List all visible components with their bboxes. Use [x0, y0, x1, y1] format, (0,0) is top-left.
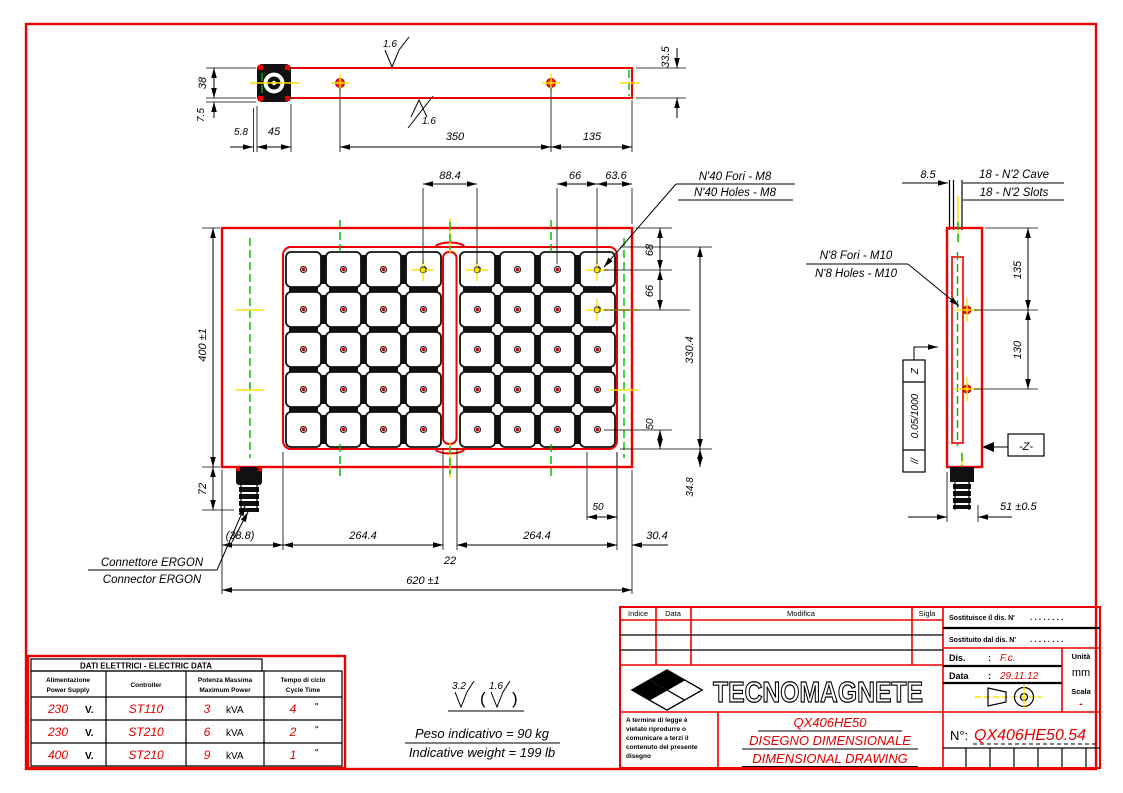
- svg-text:1: 1: [290, 748, 297, 762]
- unita-label: Unità: [1072, 652, 1092, 661]
- dis-sep: :: [988, 653, 991, 663]
- holes-label-en: N'8 Holes - M10: [815, 268, 898, 280]
- svg-text:9: 9: [204, 748, 211, 762]
- slots-label-en: 18 - N'2 Slots: [980, 187, 1049, 199]
- dim-88-4: 88.4: [439, 170, 460, 182]
- doc-title-it: DISEGNO DIMENSIONALE: [749, 733, 911, 748]
- rev-col-modifica: Modifica: [787, 609, 816, 618]
- dim-135-side: 135: [1012, 260, 1024, 279]
- paren-open: (: [480, 689, 486, 708]
- center-slot: [443, 252, 457, 444]
- paren-close: ): [512, 689, 518, 708]
- svg-text:kVA: kVA: [226, 751, 244, 762]
- dim-22: 22: [443, 555, 456, 567]
- company-name: TECNOMAGNETE: [713, 677, 923, 709]
- sostituito-label: Sostituito dal dis. N': [949, 637, 1016, 644]
- data-sep: :: [988, 671, 991, 681]
- svg-text:kVA: kVA: [226, 705, 244, 716]
- col-header: Maximum Power: [199, 687, 251, 694]
- holes-label-it: N'8 Fori - M10: [820, 250, 893, 262]
- data-label: Data: [949, 671, 970, 681]
- dim-30-4: 30.4: [646, 530, 667, 542]
- title-block: Indice Data Modifica Sigla Sostituisce i…: [620, 607, 1100, 768]
- first-angle-projection-icon: [975, 685, 1042, 709]
- weight-en: Indicative weight = 199 lb: [409, 745, 555, 760]
- m10-holes-callout: N'8 Fori - M10 N'8 Holes - M10: [806, 250, 959, 306]
- holes-label-en: N'40 Holes - M8: [694, 187, 777, 199]
- drawing-sheet: 1.6 1.6 38 7.5 5.8 45 350 135 33.5: [0, 0, 1123, 793]
- scala-label: Scala: [1071, 687, 1091, 696]
- svg-text:A termine di legge è: A termine di legge è: [626, 717, 688, 724]
- table-row: 230 V. ST210 6 kVA 2 ": [47, 725, 319, 739]
- dis-label: Dis.: [949, 653, 966, 663]
- rev-col-indice: Indice: [628, 609, 648, 618]
- fcf-tolerance: 0.05/1000: [910, 393, 921, 438]
- svg-text:disegno: disegno: [626, 753, 651, 760]
- svg-text:": ": [315, 748, 319, 759]
- general-notes: 3.2 ( 1.6 ) Peso indicativo = 90 kg Indi…: [405, 681, 560, 760]
- rev-col-data: Data: [665, 609, 682, 618]
- dim-264-4-b: 264.4: [522, 530, 551, 542]
- sostituisce-dots: . . . . . . . .: [1030, 613, 1063, 622]
- dim-63-6: 63.6: [605, 170, 627, 182]
- connector-label-it: Connettore ERGON: [101, 557, 204, 569]
- dim-8-5: 8.5: [920, 169, 936, 181]
- dim-7-5: 7.5: [196, 108, 207, 122]
- ergon-connector-front: [236, 467, 262, 512]
- svg-text:": ": [315, 725, 319, 736]
- weight-note: Peso indicativo = 90 kg Indicative weigh…: [405, 726, 560, 760]
- unita-value: mm: [1072, 667, 1090, 679]
- slots-label-it: 18 - N'2 Cave: [979, 169, 1049, 181]
- table-row: 230 V. ST110 3 kVA 4 ": [47, 702, 319, 716]
- side-view: 8.5 18 - N'2 Cave 18 - N'2 Slots N'8 For…: [806, 169, 1064, 522]
- dim-400: 400 ±1: [197, 328, 209, 362]
- col-header: Controller: [130, 682, 162, 689]
- legal-note: A termine di legge è vietato riprodurre …: [626, 717, 698, 760]
- svg-text:V.: V.: [85, 705, 94, 716]
- dim-50-right: 50: [645, 418, 656, 430]
- svg-text:vietato riprodurre o: vietato riprodurre o: [626, 726, 686, 733]
- datum-z: -Z-: [982, 434, 1044, 456]
- doc-title-en: DIMENSIONAL DRAWING: [752, 751, 908, 766]
- dim-51: 51 ±0.5: [1000, 501, 1038, 513]
- datum-label: -Z-: [1019, 441, 1033, 453]
- svg-text:400: 400: [48, 748, 68, 762]
- technical-drawing: 1.6 1.6 38 7.5 5.8 45 350 135 33.5: [0, 0, 1123, 793]
- rev-col-sigla: Sigla: [919, 609, 937, 618]
- dim-50-bottom: 50: [592, 502, 604, 513]
- drawing-title: QX406HE50 DISEGNO DIMENSIONALE DIMENSION…: [742, 715, 918, 767]
- product-code: QX406HE50: [794, 715, 868, 730]
- sostituisce-label: Sostituisce il dis. N': [949, 615, 1015, 622]
- svg-text:4: 4: [290, 702, 297, 716]
- finish-value: 1.6: [383, 39, 397, 50]
- dim-330-4: 330.4: [684, 336, 696, 364]
- dim-135: 135: [583, 131, 602, 143]
- svg-text:ST210: ST210: [128, 748, 164, 762]
- col-header: Tempo di ciclo: [280, 677, 325, 684]
- parallelism-tolerance-frame: Z 0.05/1000 //: [903, 347, 938, 472]
- col-header: Alimentazione: [46, 677, 90, 684]
- drawing-number: N°: QX406HE50.54: [943, 727, 1100, 768]
- data-value: 29.11.12: [999, 671, 1039, 682]
- dim-66-right: 66: [644, 284, 656, 297]
- sostituito-dots: . . . . . . . .: [1030, 635, 1063, 644]
- col-header: Cycle Time: [286, 687, 321, 694]
- pole-grid: [286, 252, 615, 447]
- col-header: Potenza Massima: [198, 677, 253, 684]
- svg-text:V.: V.: [85, 728, 94, 739]
- dim-45: 45: [268, 126, 281, 138]
- dim-130: 130: [1012, 340, 1024, 359]
- dim-68: 68: [644, 243, 656, 256]
- dim-33-5: 33.5: [660, 45, 672, 67]
- svg-text:2: 2: [289, 725, 297, 739]
- top-view: 1.6 1.6 38 7.5 5.8 45 350 135 33.5: [196, 37, 686, 152]
- tecnomagnete-logo: TECNOMAGNETE: [632, 670, 923, 710]
- svg-text:3: 3: [204, 702, 211, 716]
- svg-text:230: 230: [47, 725, 68, 739]
- ergon-callout: Connettore ERGON Connector ERGON: [88, 506, 245, 586]
- number-value: QX406HE50.54: [974, 727, 1086, 744]
- finish-value: 1.6: [422, 116, 436, 127]
- dim-5-8: 5.8: [234, 127, 248, 138]
- svg-text:ST210: ST210: [128, 725, 164, 739]
- electric-data-table: DATI ELETTRICI - ELECTRIC DATA Alimentaz…: [28, 656, 345, 768]
- parallelism-icon: //: [910, 457, 921, 465]
- finish-a: 3.2: [452, 681, 466, 692]
- number-label: N°:: [950, 728, 968, 743]
- holes-label-it: N'40 Fori - M8: [699, 171, 772, 183]
- scala-value: -: [1079, 698, 1083, 710]
- svg-text:comunicare a terzi il: comunicare a terzi il: [626, 735, 689, 742]
- dis-value: F.c.: [1000, 653, 1015, 664]
- dim-620: 620 ±1: [406, 575, 440, 587]
- dim-38: 38: [197, 76, 209, 89]
- dim-264-4-a: 264.4: [348, 530, 377, 542]
- svg-text:ST110: ST110: [129, 702, 164, 716]
- table-title: DATI ELETTRICI - ELECTRIC DATA: [80, 662, 212, 671]
- svg-text:6: 6: [204, 725, 211, 739]
- surface-finish-note: 3.2 ( 1.6 ): [448, 681, 524, 711]
- ergon-connector-side: [950, 467, 974, 510]
- svg-text:kVA: kVA: [226, 728, 244, 739]
- fcf-datum: Z: [910, 367, 921, 375]
- col-header: Power Supply: [47, 687, 90, 694]
- svg-text:contenuto del presente: contenuto del presente: [626, 744, 698, 751]
- weight-it: Peso indicativo = 90 kg: [415, 726, 550, 741]
- surface-finish-symbol: 1.6: [383, 37, 409, 67]
- svg-text:V.: V.: [85, 751, 94, 762]
- dim-350: 350: [446, 131, 465, 143]
- finish-b: 1.6: [489, 681, 503, 692]
- front-view: 88.4 66 63.6 N'40 Fori - M8 N'40 Holes -…: [88, 170, 795, 594]
- dim-72: 72: [197, 483, 209, 495]
- surface-finish-symbol: 1.6: [408, 96, 436, 128]
- svg-text:": ": [315, 702, 319, 713]
- dim-66-top: 66: [569, 170, 582, 182]
- dim-34-8: 34.8: [685, 477, 696, 497]
- connector-label-en: Connector ERGON: [103, 574, 202, 586]
- table-row: 400 V. ST210 9 kVA 1 ": [48, 748, 319, 762]
- svg-text:230: 230: [47, 702, 68, 716]
